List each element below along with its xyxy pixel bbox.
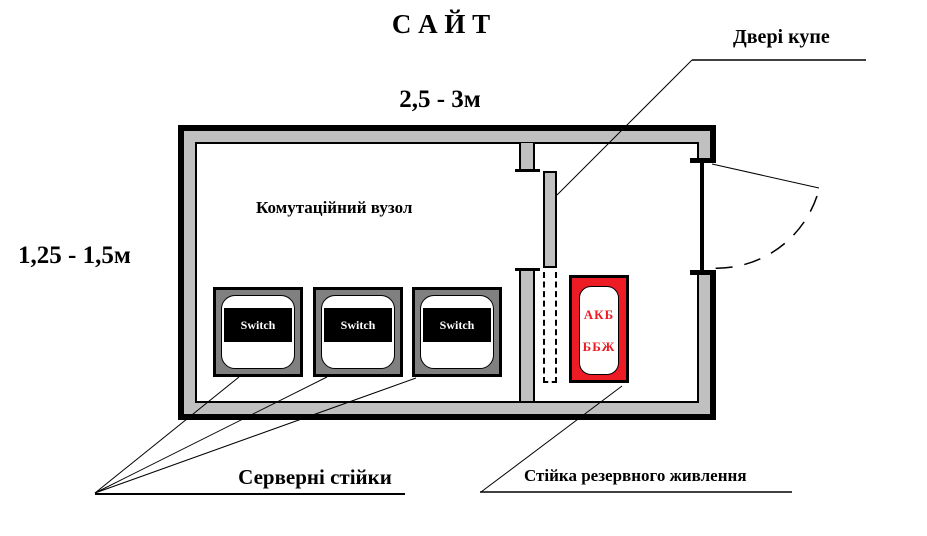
partition-lower-leg <box>519 271 535 401</box>
switch-rack-3-face: Switch <box>420 295 494 369</box>
switch-rack-2: Switch <box>313 287 403 377</box>
switch-rack-3-label: Switch <box>440 318 475 333</box>
reserve-power-rack: АКБ ББЖ <box>569 275 629 383</box>
reserve-rack-line2: ББЖ <box>583 339 616 355</box>
reserve-rack-line1: АКБ <box>584 307 614 323</box>
switch-rack-2-face: Switch <box>321 295 395 369</box>
switch-rack-2-label-bar: Switch <box>324 308 392 342</box>
room-width-dimension: 2,5 - 3м <box>340 86 540 114</box>
door-swing-open-leaf <box>712 164 819 188</box>
switching-node-label: Комутаційний вузол <box>256 198 412 218</box>
site-floorplan-diagram: С А Й Т 2,5 - 3м 1,25 - 1,5м Комутаційни… <box>0 0 927 536</box>
switch-rack-1: Switch <box>213 287 303 377</box>
sliding-door-callout-label: Двері купе <box>733 26 830 49</box>
switch-rack-1-label: Switch <box>241 318 276 333</box>
switch-rack-2-label: Switch <box>341 318 376 333</box>
entry-door-jamb-bottom <box>690 270 716 275</box>
switch-rack-1-label-bar: Switch <box>224 308 292 342</box>
partition-upper-stub <box>519 143 535 170</box>
door-swing-arc <box>709 196 817 268</box>
entry-door-leaf <box>700 163 704 270</box>
partition-upper-endcap <box>515 169 540 172</box>
diagram-title: С А Й Т <box>341 9 541 40</box>
entry-door-opening <box>693 163 719 270</box>
sliding-door-panel <box>543 171 557 268</box>
server-racks-callout-label: Серверні стійки <box>215 465 415 490</box>
reserve-power-rack-face: АКБ ББЖ <box>579 286 619 375</box>
switch-rack-1-face: Switch <box>221 295 295 369</box>
room-depth-dimension: 1,25 - 1,5м <box>18 242 131 270</box>
switch-rack-3: Switch <box>412 287 502 377</box>
sliding-door-open-phantom <box>543 272 557 383</box>
reserve-rack-callout-label: Стійка резервного живлення <box>524 466 747 486</box>
switch-rack-3-label-bar: Switch <box>423 308 491 342</box>
